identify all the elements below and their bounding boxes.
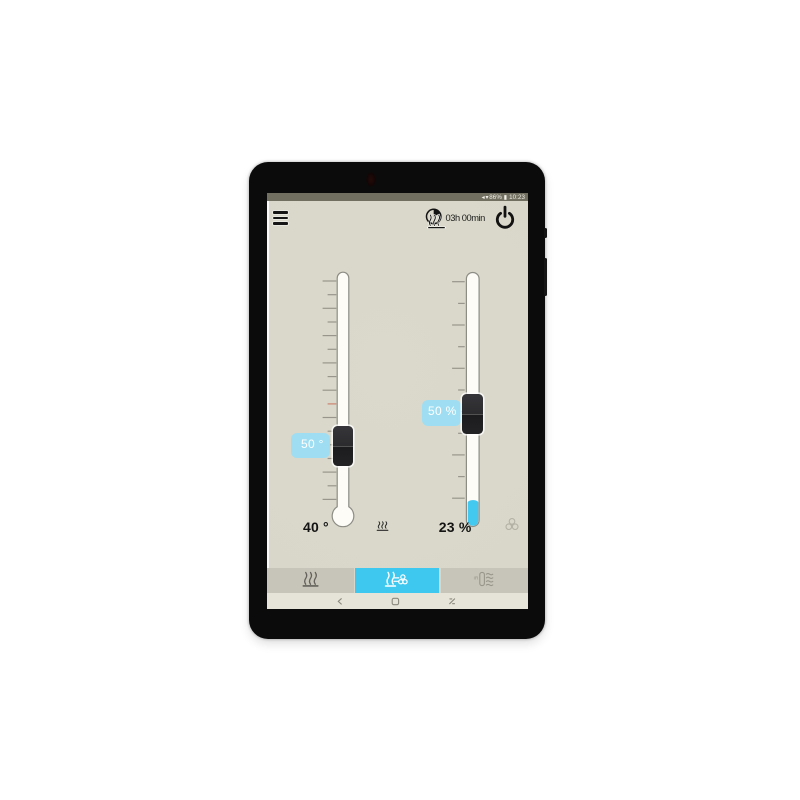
svg-text:IR: IR	[473, 576, 478, 582]
